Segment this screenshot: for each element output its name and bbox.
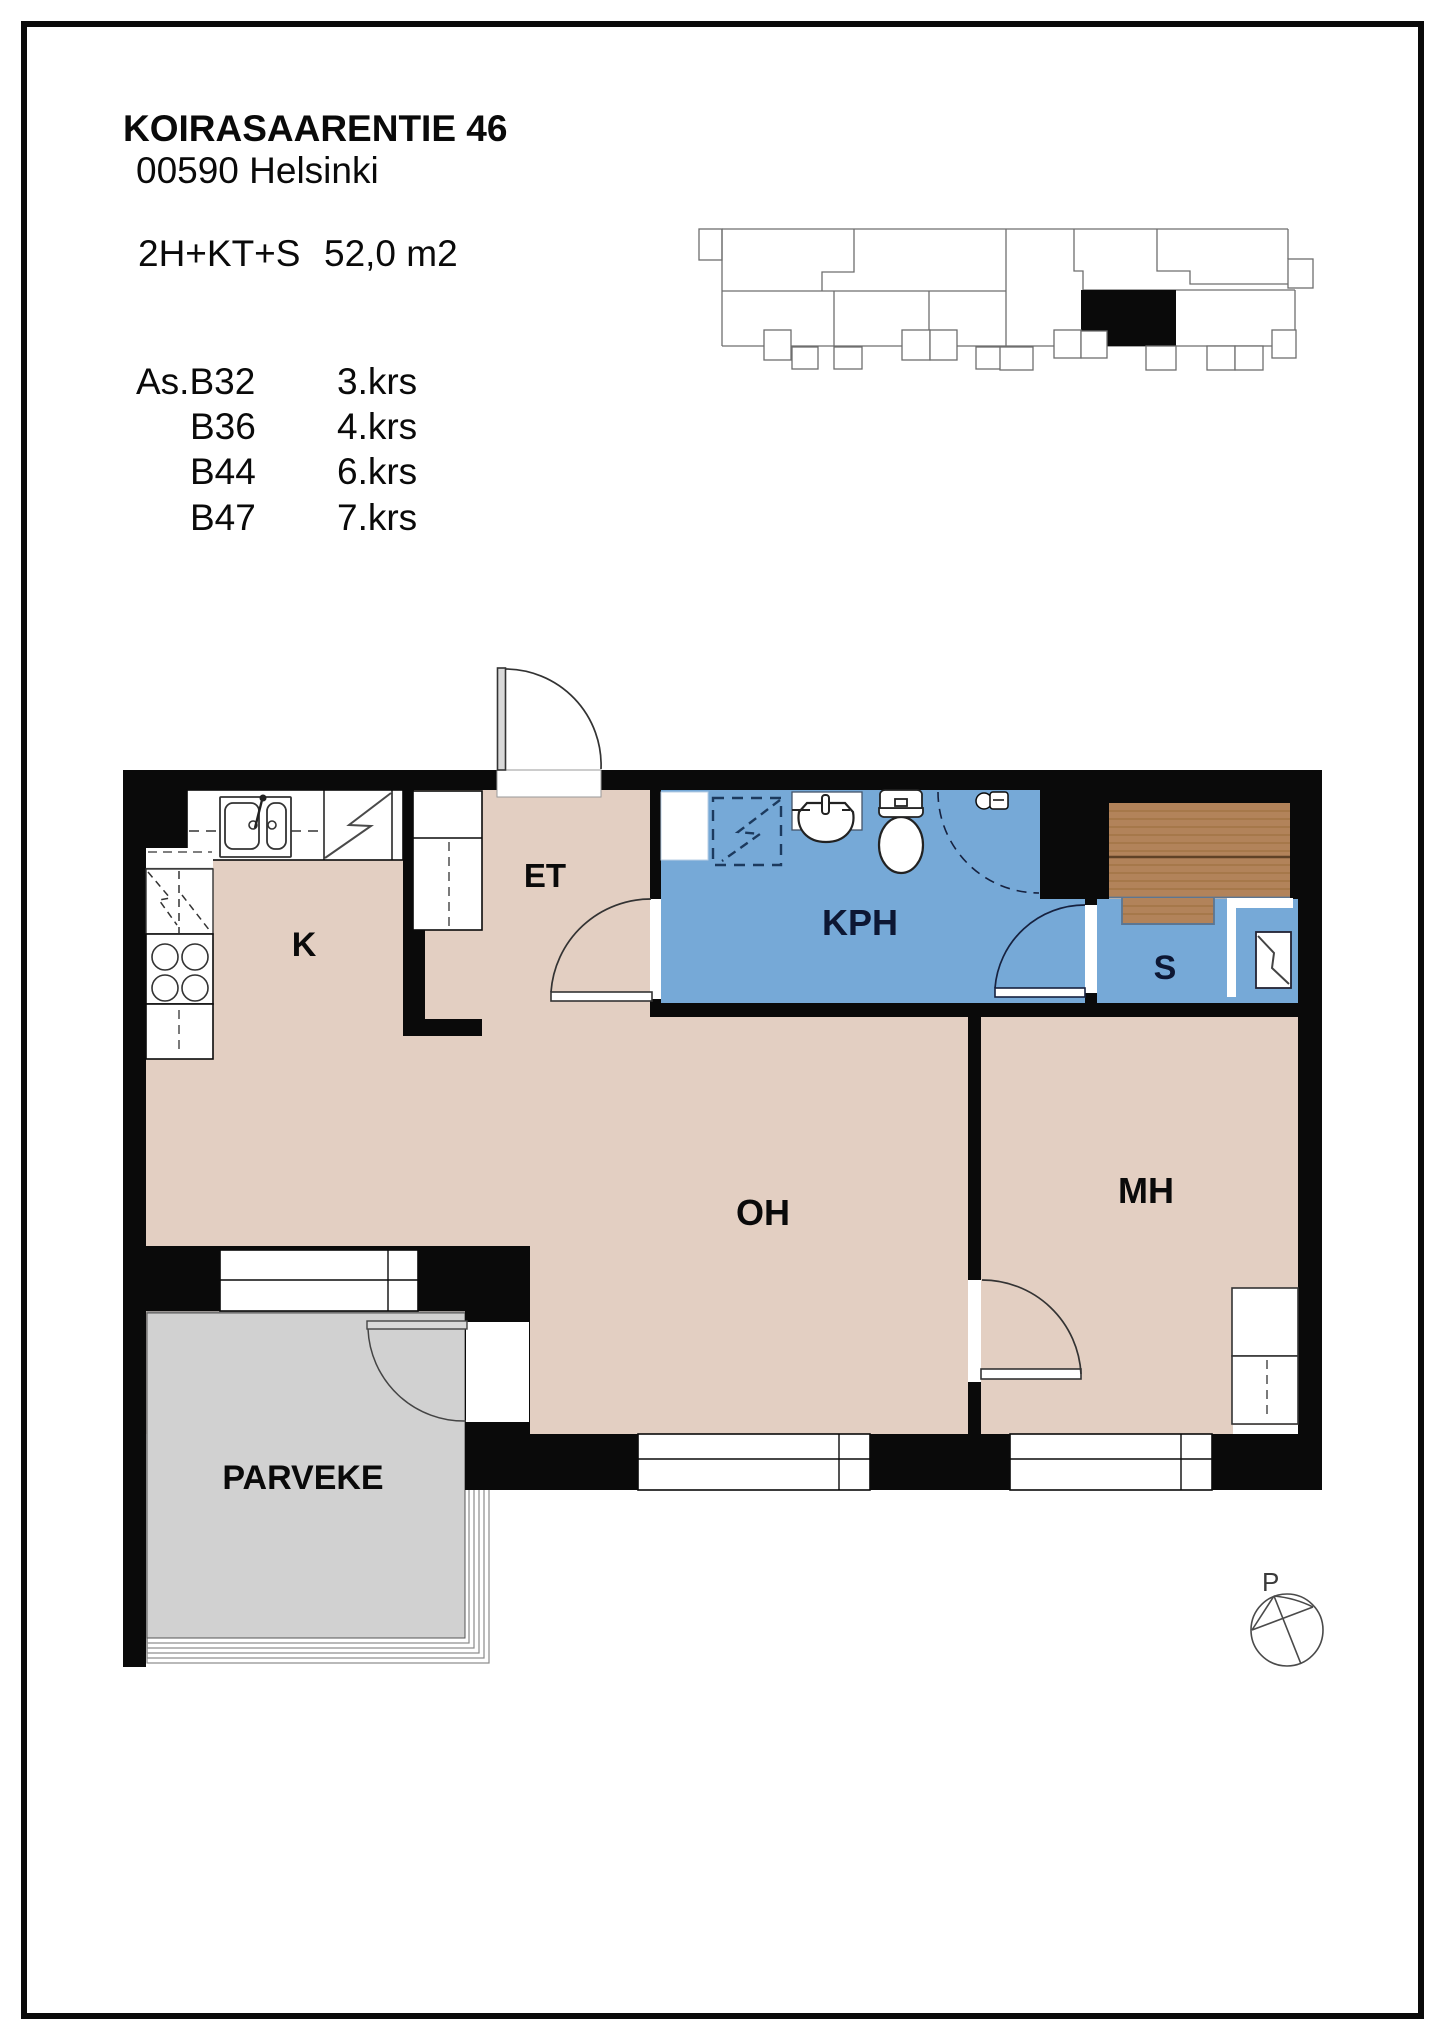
- svg-text:3.krs: 3.krs: [337, 361, 417, 402]
- svg-text:OH: OH: [736, 1192, 790, 1233]
- svg-text:As.B32: As.B32: [136, 361, 255, 402]
- svg-text:K: K: [292, 926, 317, 964]
- svg-text:B44: B44: [190, 451, 256, 492]
- svg-text:52,0 m2: 52,0 m2: [324, 233, 458, 274]
- svg-text:MH: MH: [1118, 1170, 1174, 1211]
- svg-text:2H+KT+S: 2H+KT+S: [138, 233, 300, 274]
- svg-text:KPH: KPH: [822, 902, 898, 943]
- svg-text:KOIRASAARENTIE 46: KOIRASAARENTIE 46: [123, 108, 507, 149]
- svg-text:PARVEKE: PARVEKE: [222, 1459, 383, 1497]
- svg-text:6.krs: 6.krs: [337, 451, 417, 492]
- svg-text:4.krs: 4.krs: [337, 406, 417, 447]
- svg-text:00590 Helsinki: 00590 Helsinki: [136, 150, 379, 191]
- svg-text:7.krs: 7.krs: [337, 497, 417, 538]
- svg-text:ET: ET: [524, 857, 566, 894]
- svg-text:S: S: [1154, 949, 1177, 987]
- svg-text:B47: B47: [190, 497, 256, 538]
- svg-text:B36: B36: [190, 406, 256, 447]
- svg-text:P: P: [1262, 1567, 1279, 1597]
